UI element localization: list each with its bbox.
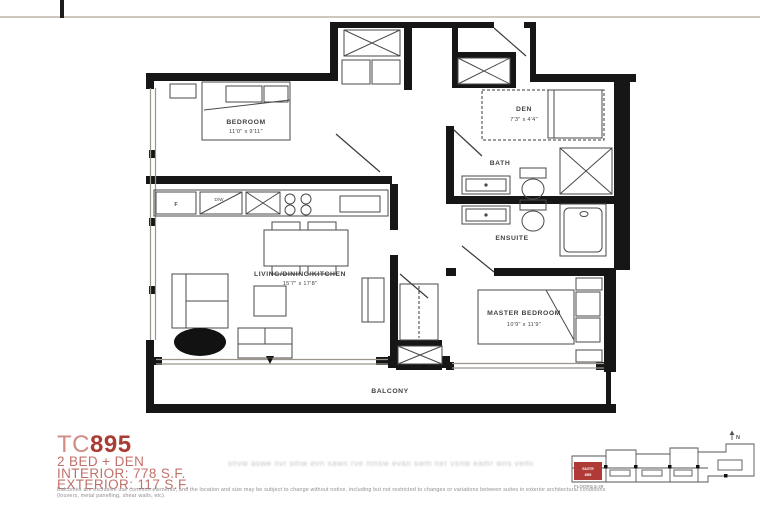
dishwasher-label: D/W <box>215 197 225 202</box>
living-dims: 15'7" x 17'8" <box>283 281 318 287</box>
utility-shaft-entry <box>458 58 510 84</box>
dining-set <box>264 222 348 274</box>
key-plan-unit-line2: 895 <box>585 472 592 477</box>
key-plan-unit-line1: SUITE <box>582 466 594 471</box>
den-outline <box>482 90 604 140</box>
key-plan-floors-label: FLOORS 5-29 <box>574 484 604 489</box>
kitchen-counter <box>154 190 388 216</box>
balcony-label: BALCONY <box>371 388 408 395</box>
north-label: N <box>736 435 740 441</box>
den-dims: 7'3" x 4'4" <box>510 117 538 123</box>
loveseat <box>238 328 292 358</box>
floor-plan-drawing: BEDROOM 11'0" x 9'11" DEN 7'3" x 4'4" BA… <box>0 0 760 430</box>
fridge-label: F <box>174 202 178 208</box>
tv-console <box>362 278 384 322</box>
den-desk <box>548 90 602 138</box>
cooktop-icon <box>285 194 311 215</box>
unit-walls <box>146 22 636 413</box>
master-bed <box>478 278 602 362</box>
ensuite-toilet <box>520 200 546 231</box>
key-plan-highlighted-unit: SUITE 895 <box>574 462 602 480</box>
den-label: DEN <box>516 106 532 113</box>
area-rug <box>174 328 226 356</box>
master-dims: 10'9" x 11'9" <box>507 322 541 328</box>
bedroom-label: BEDROOM <box>226 119 265 126</box>
laundry-closet <box>398 346 442 364</box>
suite-model: TC895 <box>57 433 189 456</box>
living-label: LIVING/DINING/KITCHEN <box>254 271 346 278</box>
sofa <box>172 274 228 328</box>
utility-shaft-top <box>344 30 400 56</box>
key-plan: SUITE 895 FLOORS 5-29 N <box>558 430 760 492</box>
bedroom-dims: 11'0" x 9'11" <box>229 129 263 135</box>
ensuite-label: ENSUITE <box>495 235 528 242</box>
room-labels: BEDROOM 11'0" x 9'11" DEN 7'3" x 4'4" BA… <box>174 106 561 395</box>
shower <box>560 148 612 194</box>
floorplan-page: BEDROOM 11'0" x 9'11" DEN 7'3" x 4'4" BA… <box>0 0 760 505</box>
north-arrow-icon: N <box>730 431 741 442</box>
coffee-table <box>254 286 286 316</box>
suite-info-block: TC895 2 BED + DEN INTERIOR: 778 S.F. EXT… <box>57 433 189 491</box>
bath-toilet <box>520 168 546 199</box>
bath-label: BATH <box>490 160 511 167</box>
disclaimer-line2: (louvers, metal panelling, shear walls, … <box>57 493 709 499</box>
bath-vanity <box>462 176 510 194</box>
ensuite-vanity <box>462 206 510 224</box>
entry-closet <box>342 60 400 84</box>
watermark-text: snvw aswe nvr smw evn sawn rve mnsw evan… <box>228 459 533 472</box>
master-label: MASTER BEDROOM <box>487 310 561 317</box>
hall-closet <box>400 284 438 340</box>
bathtub <box>560 204 606 256</box>
